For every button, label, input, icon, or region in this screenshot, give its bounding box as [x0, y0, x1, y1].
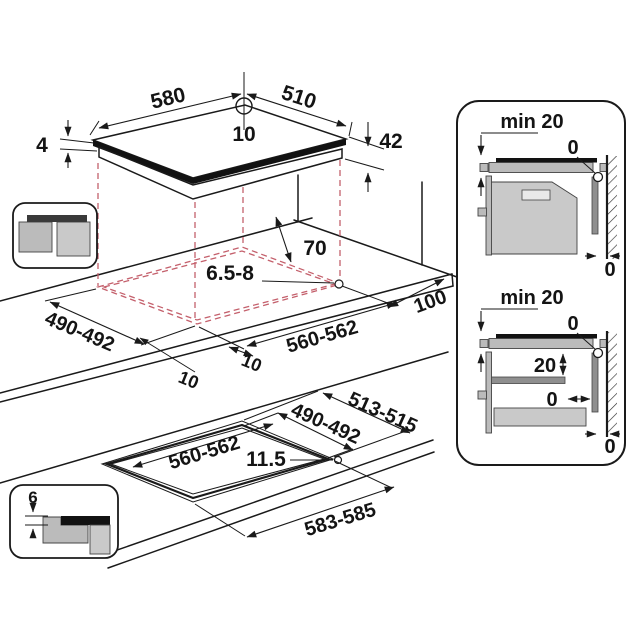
dim-recess-depth: 6 [28, 488, 37, 507]
surface-mount-icon [13, 203, 97, 268]
dim-hob-depth: 510 [279, 81, 319, 114]
dim-side-overhang: 10 [239, 350, 265, 376]
rear-gap-label: 0 [604, 259, 615, 281]
wall-hatching-2 [608, 332, 617, 436]
rear-deflector [592, 177, 598, 234]
icon-hob-glass [27, 215, 87, 222]
wall-gap-marker-2 [594, 349, 603, 358]
fixing-hole [335, 280, 343, 288]
installation-diagram-page: 6.5-8 70 490-492 560-562 100 10 10 580 [0, 0, 630, 630]
dim-ledge: 11.5 [246, 448, 286, 471]
section-worktop [489, 163, 593, 173]
dim-glass-thickness: 4 [36, 134, 48, 157]
wall-gap-label-2: 0 [567, 313, 578, 335]
section-shelf [491, 377, 565, 384]
clearance-panel: min 20 0 0 min 20 [457, 101, 625, 465]
dim-cutout-width: 560-562 [284, 316, 361, 357]
section-worktop-2 [489, 339, 593, 349]
icon-flush-glass [61, 516, 110, 525]
dim-rear-hole-offset: 10 [232, 123, 255, 146]
oven-vent [522, 190, 550, 200]
worktop-cutout-view: 6.5-8 70 490-492 560-562 100 10 10 [0, 160, 457, 402]
rear-deflector-2 [592, 353, 598, 412]
shelf-gap-label: 20 [534, 355, 556, 377]
wall-gap-marker [594, 173, 603, 182]
section-drawer [494, 408, 586, 426]
rear-gap-label-2: 0 [604, 436, 615, 458]
dim-front-overhang: 10 [176, 367, 202, 393]
flush-mount-icon: 6 [10, 485, 118, 558]
dim-hob-width: 580 [148, 83, 187, 114]
dim-rear-clearance: 70 [303, 237, 326, 260]
wall-gap-label: 0 [567, 137, 578, 159]
wall-hatching [608, 156, 617, 259]
dim-hob-height: 42 [379, 130, 402, 153]
dim-hole-diameter: 6.5-8 [206, 262, 254, 285]
hob-isometric-view: 580 510 10 4 42 [36, 72, 403, 199]
hob-glass-edge [93, 139, 346, 184]
min-thickness-label-2: min 20 [500, 287, 563, 309]
installation-diagram: 6.5-8 70 490-492 560-562 100 10 10 580 [0, 0, 630, 630]
min-thickness-label: min 20 [500, 111, 563, 133]
dim-side-clearance: 100 [411, 286, 450, 318]
